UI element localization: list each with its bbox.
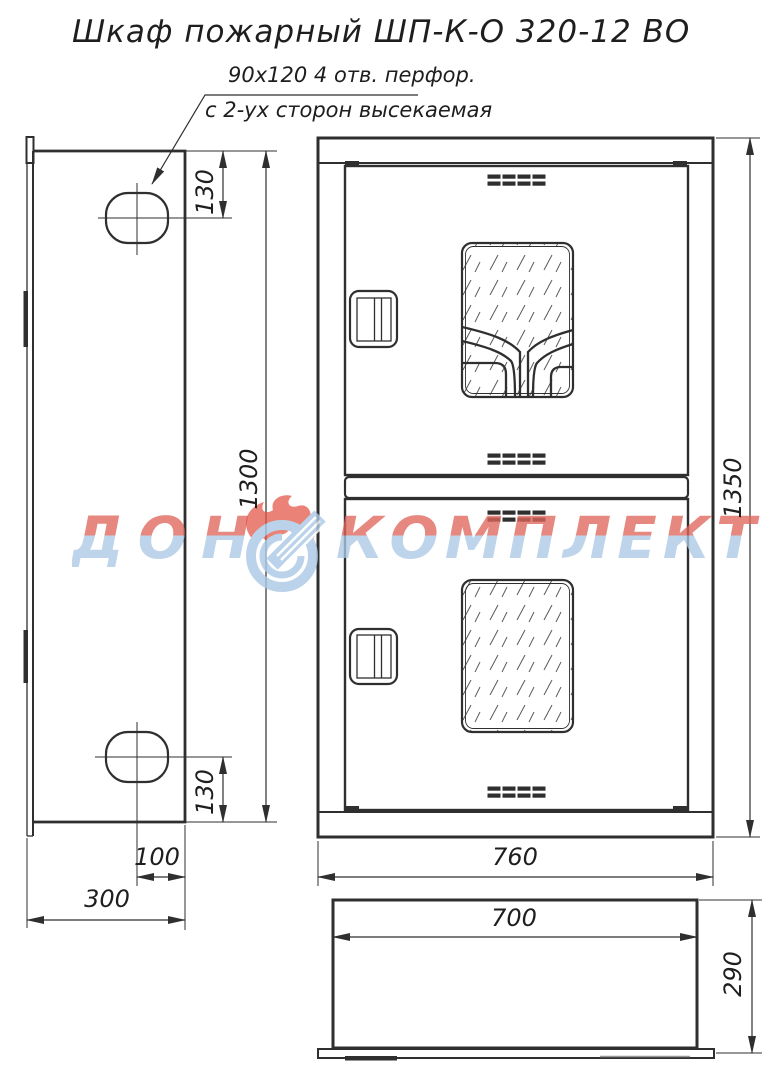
side-handle-bump-top	[24, 291, 29, 347]
lower-window	[462, 580, 573, 732]
dim-side-hole-edge-offset: 100	[122, 843, 192, 871]
upper-window	[462, 243, 573, 397]
dim-side-panel-height: 1300	[235, 444, 263, 514]
dim-top-depth: 290	[719, 939, 747, 1009]
dim-side-hole-bottom-offset: 130	[191, 757, 219, 827]
dim-front-overall-height: 1350	[719, 453, 747, 523]
watermark-word-komplekt: КОМПЛЕКТ	[336, 504, 762, 572]
foot-pad	[345, 1056, 397, 1061]
dim-side-panel-depth: 300	[72, 885, 142, 913]
side-view	[24, 95, 419, 886]
annotation-line2: с 2-ух сторон высекаемая	[205, 98, 492, 122]
side-handle-bump-bottom	[24, 630, 29, 683]
drawing-sheet: ДОН КОМПЛЕКТ Шкаф пожарный ШП-К-О 320-12…	[0, 0, 768, 1084]
annotation-line1: 90х120 4 отв. перфор.	[228, 63, 476, 87]
side-panel-outline	[33, 151, 185, 822]
dim-front-overall-width: 760	[480, 843, 550, 871]
upper-door-handle	[350, 291, 397, 347]
divider-band	[345, 477, 688, 498]
front-view	[318, 138, 713, 837]
dim-top-inner-width: 700	[479, 904, 549, 932]
dim-side-hole-top-offset: 130	[191, 157, 219, 227]
lower-door-handle	[350, 629, 397, 684]
drawing-title: Шкаф пожарный ШП-К-О 320-12 ВО	[72, 14, 672, 50]
